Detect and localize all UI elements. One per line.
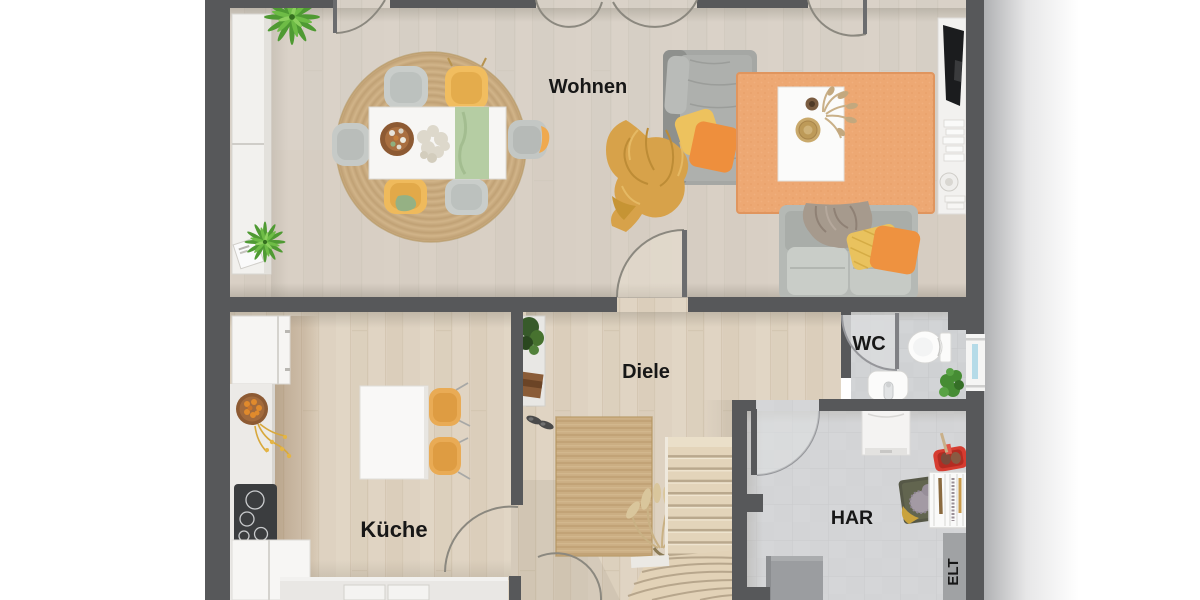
svg-text:Diele: Diele xyxy=(622,361,670,383)
svg-text:ELT: ELT xyxy=(945,558,962,585)
svg-text:Küche: Küche xyxy=(360,517,427,542)
svg-text:Wohnen: Wohnen xyxy=(549,76,628,98)
svg-text:WC: WC xyxy=(852,333,885,355)
svg-text:HAR: HAR xyxy=(831,507,873,529)
